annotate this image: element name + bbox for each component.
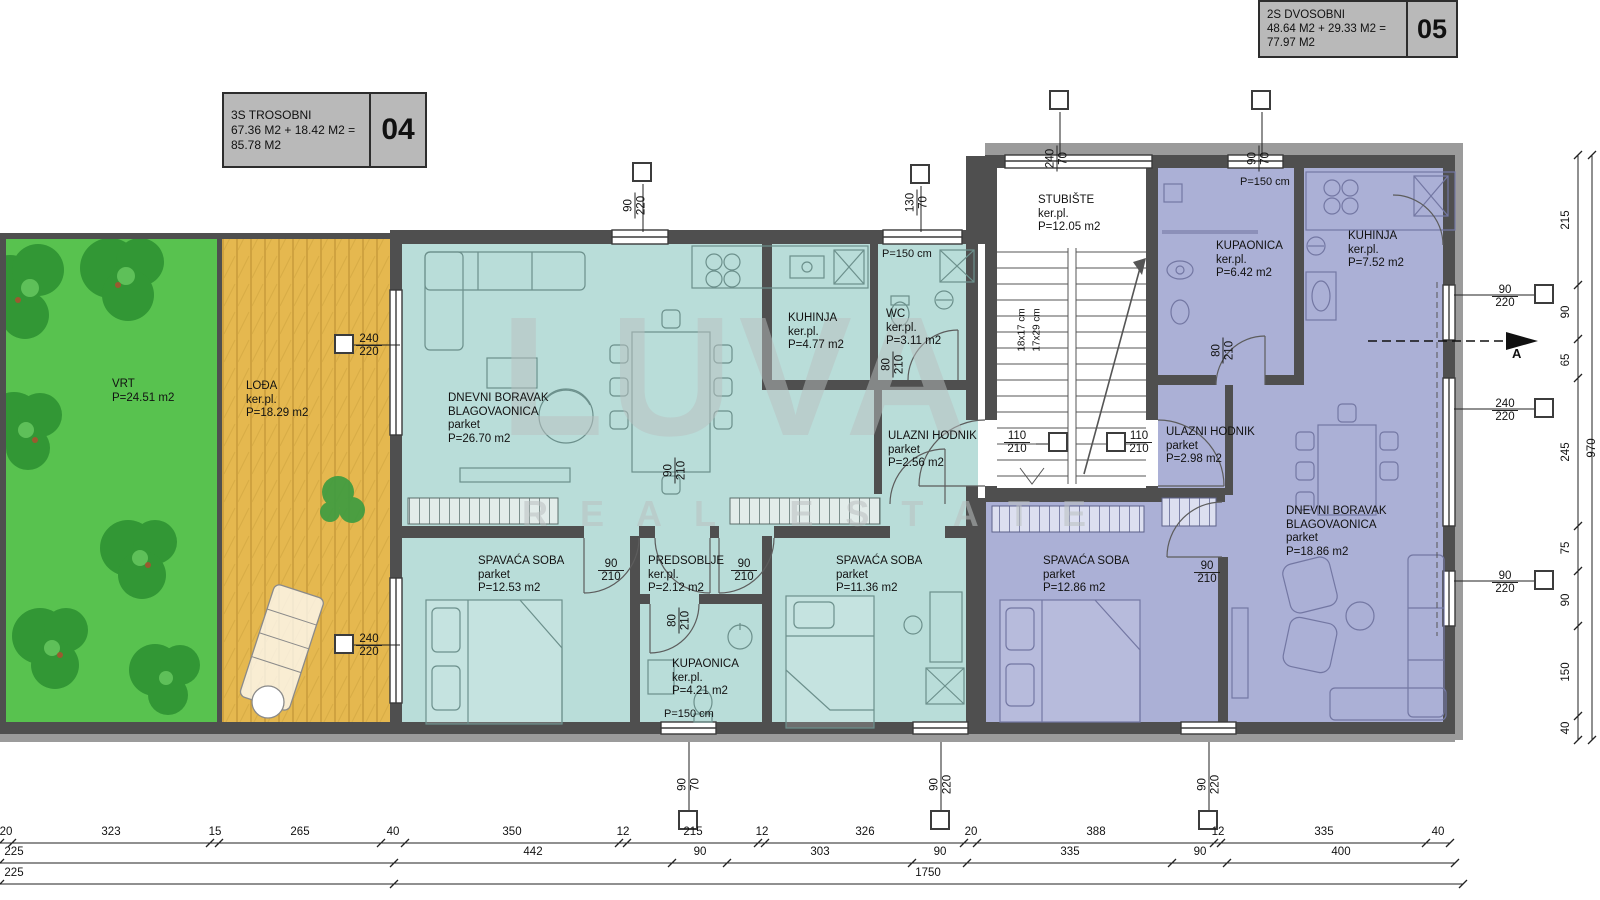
dim-label: 323 [101, 826, 120, 838]
dim-label: 335 [1314, 826, 1333, 838]
dim-label: 12 [617, 826, 630, 838]
dim-window-top-1: 90220 [623, 193, 648, 219]
dim-window-top-2: 13070 [905, 190, 930, 216]
dim-label: 225 [4, 846, 23, 858]
dim-label: 225 [4, 867, 23, 879]
dim-label: 20 [0, 826, 12, 838]
dim-window-right-3: 90220 [1492, 570, 1518, 595]
dim-label: 40 [387, 826, 400, 838]
room-label-spavaca-2: SPAVAĆA SOBAparketP=11.36 m2 [836, 555, 922, 596]
dim-label: 40 [1560, 722, 1572, 735]
dim-label: 215 [1560, 210, 1572, 229]
floor-plan-page: LUVA REAL ESTATE 3S TROSOBNI 67.36 M2 + … [0, 0, 1600, 900]
dim-label: 12 [756, 826, 769, 838]
unit-04-number: 04 [369, 94, 425, 166]
window-callout-square [1534, 570, 1554, 590]
dim-label: 15 [209, 826, 222, 838]
dim-door-wc: 80210 [881, 352, 906, 378]
dim-window-bottom-1: 9070 [677, 772, 702, 798]
note-stair-rise: 18x17 cm [1017, 308, 1028, 351]
dim-label: 12 [1212, 826, 1225, 838]
bottom-dim-row-3: 2251750 [0, 867, 1600, 881]
room-label-predsoblje: PREDSOBLJEker.pl.P=2.12 m2 [648, 555, 724, 596]
window-callout-square [334, 634, 354, 654]
dim-entry-door-05: 110210 [1126, 430, 1152, 455]
room-label-lodja: LOĐAker.pl.P=18.29 m2 [246, 380, 308, 421]
dim-door-bedroom1: 90210 [598, 558, 624, 583]
dim-label: 335 [1060, 846, 1079, 858]
dim-label: 90 [694, 846, 707, 858]
room-label-kuhinja-04: KUHINJAker.pl.P=4.77 m2 [788, 312, 844, 353]
window-callout-square [1534, 398, 1554, 418]
room-label-spavaca-1: SPAVAĆA SOBAparketP=12.53 m2 [478, 555, 564, 596]
window-callout-square [910, 164, 930, 184]
window-callout-square [1049, 90, 1069, 110]
dim-label: 303 [810, 846, 829, 858]
dim-label: 40 [1432, 826, 1445, 838]
dim-label: 90 [1194, 846, 1207, 858]
room-label-dnevni-04: DNEVNI BORAVAKBLAGOVAONICA parketP=26.70… [448, 392, 549, 446]
dim-label: 90 [1560, 594, 1572, 607]
window-callout-square [1534, 284, 1554, 304]
dim-window-right-1: 90220 [1492, 284, 1518, 309]
unit-04-title-box: 3S TROSOBNI 67.36 M2 + 18.42 M2 = 85.78 … [222, 92, 427, 168]
note-p150-kupaonica-05: P=150 cm [1240, 176, 1290, 188]
dim-label: 265 [290, 826, 309, 838]
window-callout-square [334, 334, 354, 354]
dim-door-bathroom-05: 80210 [1211, 338, 1236, 364]
watermark-sub: REAL ESTATE [522, 496, 1118, 532]
room-label-ulazni-05: ULAZNI HODNIKparketP=2.98 m2 [1166, 426, 1255, 467]
dim-window-bottom-2: 90220 [929, 772, 954, 798]
dim-window-top-3: 24070 [1045, 146, 1070, 172]
dim-label: 20 [965, 826, 978, 838]
bottom-dim-row-1: 2032315265403501221512326203881233540 [0, 826, 1600, 840]
dim-door-bedroom-05: 90210 [1194, 560, 1220, 585]
dim-door-bathroom-04: 80210 [667, 608, 692, 634]
room-label-spavaca-05: SPAVAĆA SOBAparketP=12.86 m2 [1043, 555, 1129, 596]
unit-05-total: 77.97 M2 [1267, 36, 1399, 50]
dim-label: 245 [1560, 442, 1572, 461]
dim-window-right-2: 240220 [1492, 398, 1518, 423]
note-p150-wc: P=150 cm [882, 248, 932, 260]
unit-05-type: 2S DVOSOBNI [1267, 8, 1399, 22]
room-label-stubiste: STUBIŠTEker.pl.P=12.05 m2 [1038, 194, 1100, 235]
room-label-ulazni-04: ULAZNI HODNIKparketP=2.56 m2 [888, 430, 977, 471]
unit-05-calc: 48.64 M2 + 29.33 M2 = [1267, 22, 1399, 36]
dim-label: 65 [1560, 354, 1572, 367]
unit-04-type: 3S TROSOBNI [231, 108, 362, 123]
door-callout-square [1106, 432, 1126, 452]
dim-label: 442 [523, 846, 542, 858]
note-stair-run: 17x29 cm [1032, 308, 1043, 351]
unit-04-calc: 67.36 M2 + 18.42 M2 = [231, 123, 362, 138]
door-callout-square [1048, 432, 1068, 452]
bottom-dim-row-2: 225442903039033590400 [0, 846, 1600, 860]
unit-04-info: 3S TROSOBNI 67.36 M2 + 18.42 M2 = 85.78 … [224, 94, 369, 166]
dim-label: 388 [1086, 826, 1105, 838]
dim-entry-door-04: 110210 [1004, 430, 1030, 455]
room-label-kuhinja-05: KUHINJAker.pl.P=7.52 m2 [1348, 230, 1404, 271]
note-p150-kupaonica-04: P=150 cm [664, 708, 714, 720]
dim-label: 150 [1560, 662, 1572, 681]
dim-label: 75 [1560, 542, 1572, 555]
dim-label: 90 [934, 846, 947, 858]
right-dim-total: 970 [1586, 438, 1598, 457]
dim-door-predsoblje: 90210 [663, 458, 688, 484]
window-callout-square [632, 162, 652, 182]
unit-05-title-box: 2S DVOSOBNI 48.64 M2 + 29.33 M2 = 77.97 … [1258, 0, 1458, 58]
window-callout-square [1251, 90, 1271, 110]
dim-label: 215 [683, 826, 702, 838]
dim-label: 1750 [915, 867, 941, 879]
unit-05-info: 2S DVOSOBNI 48.64 M2 + 29.33 M2 = 77.97 … [1260, 2, 1406, 56]
room-label-kupaonica-04: KUPAONICAker.pl.P=4.21 m2 [672, 658, 739, 699]
unit-04-total: 85.78 M2 [231, 138, 362, 153]
dim-window-bottom-3: 90220 [1197, 772, 1222, 798]
room-label-vrt: VRTP=24.51 m2 [112, 378, 174, 405]
dim-label: 326 [855, 826, 874, 838]
room-label-kupaonica-05: KUPAONICAker.pl.P=6.42 m2 [1216, 240, 1283, 281]
dim-label: 400 [1331, 846, 1350, 858]
room-label-wc-04: WCker.pl.P=3.11 m2 [886, 308, 941, 349]
dim-window-top-4: 9070 [1247, 146, 1272, 172]
dim-label: 90 [1560, 306, 1572, 319]
room-label-dnevni-05: DNEVNI BORAVAKBLAGOVAONICA parketP=18.86… [1286, 505, 1387, 559]
dim-window-left-1: 240220 [356, 333, 382, 358]
dim-label: 350 [502, 826, 521, 838]
dim-window-left-2: 240220 [356, 633, 382, 658]
unit-05-number: 05 [1406, 2, 1456, 56]
section-marker-a: A [1512, 346, 1521, 361]
dim-door-bedroom2: 90210 [731, 558, 757, 583]
